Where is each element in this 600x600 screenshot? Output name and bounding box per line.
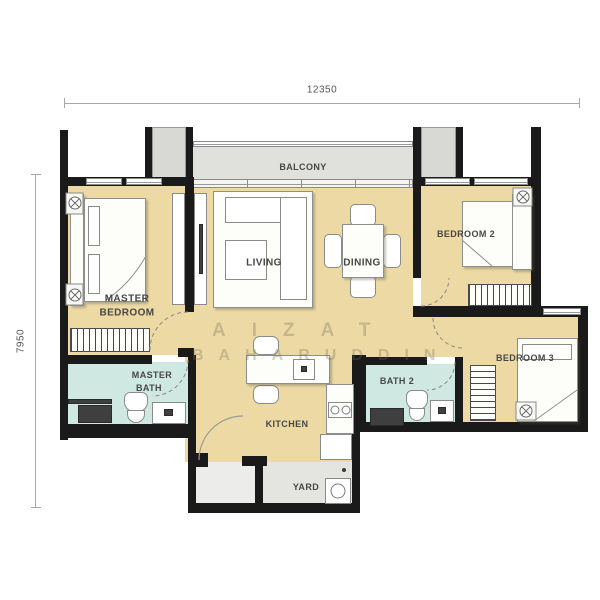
label-bath2: BATH 2 [380, 376, 414, 386]
watermark-line2: BAHARUDDIN [192, 347, 450, 365]
burner-icon-1 [331, 406, 339, 414]
label-master-bath-line2: BATH [136, 383, 162, 393]
entry-door-arc [199, 416, 243, 460]
floor-plan: 12350 7950 [0, 0, 600, 600]
watermark-line1: AIZAT [212, 320, 397, 342]
label-master-bedroom-line1: MASTER [105, 294, 150, 305]
burner-icon-2 [342, 406, 350, 414]
label-kitchen: KITCHEN [266, 419, 309, 429]
bedroom2-door-arc [421, 278, 449, 306]
label-dining: DINING [343, 258, 380, 269]
bedroom3-nightstand-icon [516, 402, 536, 420]
bedroom3-door-arc [433, 318, 463, 348]
master-nightstand-bottom-icon [66, 284, 83, 305]
washer-door-icon [331, 484, 345, 498]
bedroom2-nightstand-icon [513, 188, 532, 206]
label-master-bedroom-line2: BEDROOM [99, 308, 154, 319]
yard-tap-icon [342, 468, 346, 472]
label-balcony: BALCONY [279, 162, 326, 172]
label-yard: YARD [293, 482, 319, 492]
label-bedroom3: BEDROOM 3 [496, 353, 554, 363]
bedroom2-bed-fold-line [462, 240, 492, 266]
bath2-door-arc [427, 362, 455, 390]
master-nightstand-top-icon [66, 193, 83, 214]
label-master-bath-line1: MASTER [132, 370, 172, 380]
plan-overlay [0, 0, 600, 600]
label-living: LIVING [246, 258, 282, 269]
master-bedroom-door-arc [150, 312, 188, 350]
label-bedroom2: BEDROOM 2 [437, 229, 495, 239]
bedroom3-bed-fold-line [534, 390, 577, 421]
